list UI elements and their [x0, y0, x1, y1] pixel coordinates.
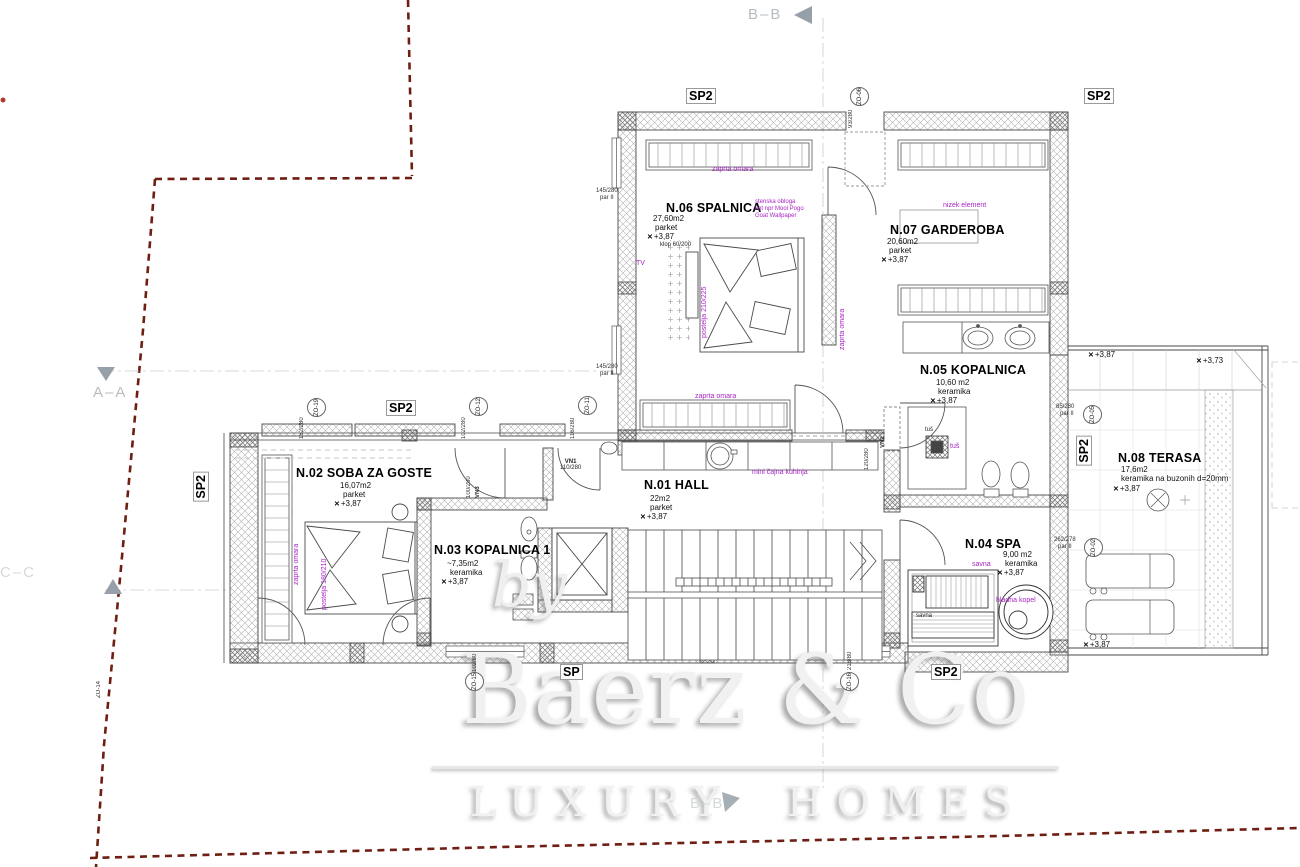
- room-label-n02: N.02 SOBA ZA GOSTE: [296, 466, 432, 480]
- tag-zo02-par: par II: [1058, 544, 1072, 551]
- win-dim-left-1: 145/280: [596, 188, 618, 195]
- room-area-n02: 16,07m2: [340, 481, 371, 490]
- room-floor-n04: keramika: [1005, 559, 1037, 568]
- door-label-vn3-dim: 100/280: [466, 464, 473, 498]
- floor-plan: B–B B–B A–A C–C SP2 SP2 SP2 SP2 SP2 SP2 …: [0, 0, 1300, 867]
- tag-zo19: ZO-19: [307, 398, 326, 417]
- wall-label-sp2-left: SP2: [193, 472, 209, 502]
- tag-zo05-par: par II: [1060, 411, 1074, 418]
- room-floor-n01: parket: [650, 503, 672, 512]
- wall-label-sp2-top-left: SP2: [686, 88, 716, 104]
- win-dim-left-2: 145/280: [596, 364, 618, 371]
- level-mark-icon: ✕: [1083, 642, 1089, 649]
- room-area-n06: 27,60m2: [653, 214, 684, 223]
- room-level-n03: ✕+3,87: [441, 577, 468, 586]
- note-sauna-black: savna: [916, 613, 932, 619]
- tag-zo16-dim: 218/80: [847, 646, 854, 670]
- plan-drawing: [0, 0, 1300, 867]
- room-level-n02: ✕+3,87: [334, 499, 361, 508]
- boundary-dot: [1, 98, 6, 103]
- note-bed-guest: postelja 180/210: [321, 540, 328, 610]
- wall-label-sp2-bottom: SP2: [931, 664, 961, 680]
- note-low-element: nizek element: [943, 202, 986, 209]
- section-label-bb-bottom: B–B: [690, 795, 724, 812]
- note-tea-kitchen: mini čajna kuhinja: [752, 469, 808, 476]
- room-label-n04: N.04 SPA: [965, 537, 1021, 551]
- room-area-n04: 9,00 m2: [1003, 550, 1032, 559]
- section-label-aa: A–A: [93, 384, 127, 401]
- tag-zo02-dim: 262/278: [1054, 537, 1076, 544]
- level-mark-icon: ✕: [334, 501, 340, 508]
- room-label-n06: N.06 SPALNICA: [666, 201, 761, 215]
- level-mark-icon: ✕: [881, 257, 887, 264]
- tag-zo12: ZO-12: [469, 397, 488, 416]
- room-level-n06: ✕+3,87: [647, 232, 674, 241]
- level-mark-icon: ✕: [1196, 358, 1202, 365]
- wall-label-sp2-mid: SP2: [386, 400, 416, 416]
- room-level-n05: ✕+3,87: [930, 396, 957, 405]
- level-mark-icon: ✕: [997, 570, 1003, 577]
- level-mark-icon: ✕: [1088, 352, 1094, 359]
- note-closet-bottom: zaprta omara: [695, 393, 736, 400]
- room-area-n05: 10,60 m2: [936, 378, 969, 387]
- section-label-bb-top: B–B: [748, 6, 782, 23]
- tag-zo15: ZO-15: [465, 672, 484, 691]
- note-shower-black: tuš: [925, 427, 933, 433]
- door-label-vn2: VN2: [880, 428, 887, 448]
- terrace-level-1: ✕+3,87: [1088, 350, 1115, 359]
- tag-zo05-dim: 85/280: [1056, 404, 1074, 411]
- tag-zo02: ZO-02: [1084, 538, 1103, 557]
- wall-label-sp2-top-right: SP2: [1084, 88, 1114, 104]
- level-mark-icon: ✕: [640, 514, 646, 521]
- room-label-n08: N.08 TERASA: [1118, 451, 1201, 465]
- room-label-n01: N.01 HALL: [644, 478, 709, 492]
- tag-zo11-dim: 116/280: [570, 411, 577, 439]
- note-bed-master: postelja 210/225: [701, 268, 708, 338]
- room-floor-n06: parket: [655, 223, 677, 232]
- room-label-n05: N.05 KOPALNICA: [920, 363, 1026, 377]
- tag-zo15-dim: 102/80: [472, 650, 479, 672]
- vanity-double-sink: [903, 322, 1049, 353]
- room-floor-n03: keramika: [450, 568, 482, 577]
- note-sauna-purple: savna: [972, 561, 991, 568]
- terrace-level-3: ✕+3,87: [1083, 640, 1110, 649]
- room-floor-n02: parket: [343, 490, 365, 499]
- tag-zo12-dim: 102/280: [461, 411, 468, 439]
- section-label-cc: C–C: [0, 564, 36, 581]
- room-label-n03: N.03 KOPALNICA 1: [434, 543, 550, 557]
- room-level-n01: ✕+3,87: [640, 512, 667, 521]
- tag-zo16: ZO-16: [840, 672, 859, 691]
- bench-note: klop 60/200: [660, 242, 691, 248]
- tag-zo19-dim: 152/280: [299, 411, 306, 439]
- room-area-n03: ~7,35m2: [447, 559, 478, 568]
- note-tv: TV: [636, 260, 645, 267]
- room-floor-n07: parket: [889, 246, 911, 255]
- master-bed: [664, 238, 804, 352]
- tag-zo14: ZO-14: [96, 674, 103, 698]
- room-level-n07: ✕+3,87: [881, 255, 908, 264]
- room-level-n04: ✕+3,87: [997, 568, 1024, 577]
- door-label-vn1: VN1110/280: [560, 459, 581, 471]
- wall-label-sp-bottom: SP: [560, 664, 583, 680]
- note-wallpaper: stenska oblogakot npr Mool PogoGoat Wall…: [755, 199, 804, 220]
- room-floor-n05: keramika: [938, 387, 970, 396]
- wall-label-sp2-terrace: SP2: [1076, 436, 1092, 466]
- level-mark-icon: ✕: [441, 579, 447, 586]
- room-level-n08: ✕+3,87: [1113, 484, 1140, 493]
- elevator: [552, 528, 612, 600]
- spa: [908, 570, 1053, 646]
- room-area-n08: 17,6m2: [1121, 465, 1148, 474]
- note-shower-purple: tuš: [950, 443, 959, 450]
- tea-kitchen: [622, 442, 878, 470]
- tag-zo11: ZO-11: [578, 396, 597, 415]
- level-mark-icon: ✕: [930, 398, 936, 405]
- terrace-level-2: ✕+3,73: [1196, 356, 1223, 365]
- door-label-vn2-dim: 120/280: [864, 440, 871, 470]
- bathroom-n05: [908, 407, 1029, 497]
- win-dim-left-1-par: par II: [600, 195, 614, 202]
- level-mark-icon: ✕: [1113, 486, 1119, 493]
- room-floor-n08: keramika na buzonih d=20mm: [1121, 474, 1228, 483]
- note-cold-bath: hladna kopel: [996, 597, 1036, 604]
- note-closet-top: zaprta omara: [712, 166, 753, 173]
- tag-zo05: ZO-05: [1083, 405, 1102, 424]
- room-label-n07: N.07 GARDEROBA: [890, 223, 1005, 237]
- tag-zo06-dim: 93/280: [848, 100, 855, 128]
- stairs: [628, 530, 882, 660]
- room-area-n07: 20,60m2: [887, 237, 918, 246]
- room-area-n01: 22m2: [650, 494, 670, 503]
- level-mark-icon: ✕: [647, 234, 653, 241]
- note-closet-right: zaprta omara: [839, 290, 846, 350]
- win-dim-left-2-par: par II: [600, 371, 614, 378]
- note-closet-guest: zaprta omara: [293, 525, 300, 585]
- door-label-vn3: VN3: [475, 464, 482, 498]
- terrace: [1068, 346, 1300, 655]
